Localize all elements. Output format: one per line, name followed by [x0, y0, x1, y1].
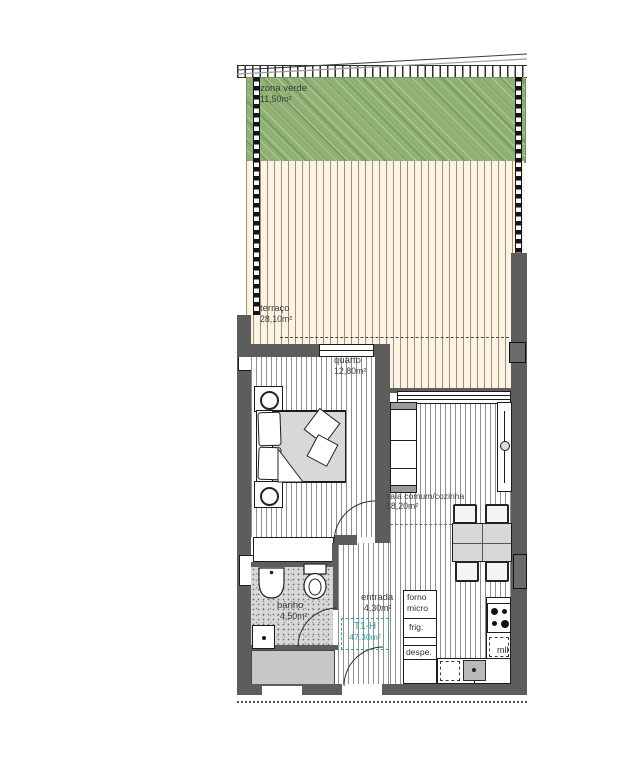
room-area: 4,50m² [277, 611, 307, 621]
bathroom-label: banho 4,50m² [277, 600, 307, 622]
room-name: zona verde [260, 83, 307, 94]
unit-area: 47,30m² [342, 632, 388, 642]
bedroom-door-arc [334, 501, 375, 542]
room-name: terraço [260, 303, 292, 314]
room-name: sala comum/cozinha [386, 491, 464, 501]
room-area: 28,10m² [260, 314, 292, 324]
room-name: banho [277, 600, 307, 611]
living-room-label: sala comum/cozinha 18,20m² [386, 491, 464, 512]
room-area: 4,30m² [361, 603, 391, 613]
fence-top-rail-line [237, 59, 527, 74]
unit-code: T1-H [342, 621, 388, 632]
unit-tag-box: T1-H 47,30m² [341, 618, 389, 650]
plan-linework [0, 0, 635, 759]
toilet [304, 564, 326, 599]
floor-plan: forno micro frig. despe. [0, 0, 635, 759]
room-name: entrada [361, 592, 393, 603]
terrace-label: terraço 28,10m² [260, 303, 292, 325]
duvet-fold [278, 449, 303, 482]
bathroom-sink [259, 568, 284, 598]
room-area: 18,20m² [386, 501, 418, 511]
green-zone-label: zona verde 11,50m² [260, 83, 307, 105]
room-area: 12,80m² [334, 366, 366, 376]
room-name: quarto [334, 355, 366, 366]
dishwasher-label: mll [497, 646, 509, 656]
entry-label: entrada 4,30m² [361, 592, 393, 614]
room-area: 11,50m² [260, 94, 292, 104]
fence-top-rail-line-2 [237, 54, 527, 70]
bedroom-label: quarto 12,80m² [334, 355, 366, 377]
front-door-arc [344, 647, 383, 686]
